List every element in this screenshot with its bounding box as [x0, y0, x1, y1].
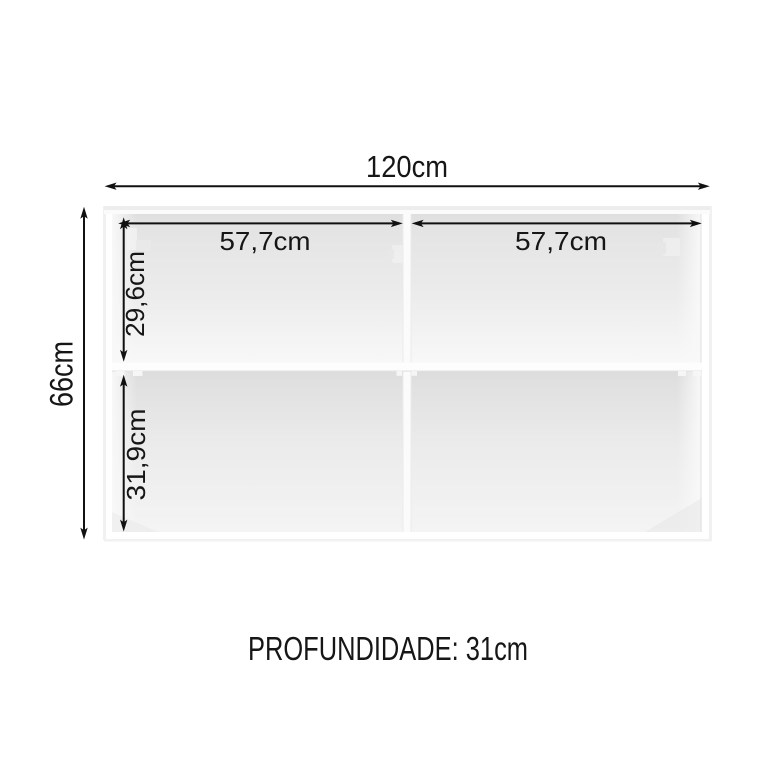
svg-text:29,6cm: 29,6cm	[120, 251, 150, 337]
svg-text:PROFUNDIDADE: 31cm: PROFUNDIDADE: 31cm	[248, 630, 528, 667]
svg-text:31,9cm: 31,9cm	[121, 409, 151, 501]
svg-text:120cm: 120cm	[366, 149, 448, 184]
svg-text:57,7cm: 57,7cm	[515, 226, 607, 256]
svg-text:66cm: 66cm	[44, 341, 80, 407]
svg-text:57,7cm: 57,7cm	[220, 226, 311, 256]
